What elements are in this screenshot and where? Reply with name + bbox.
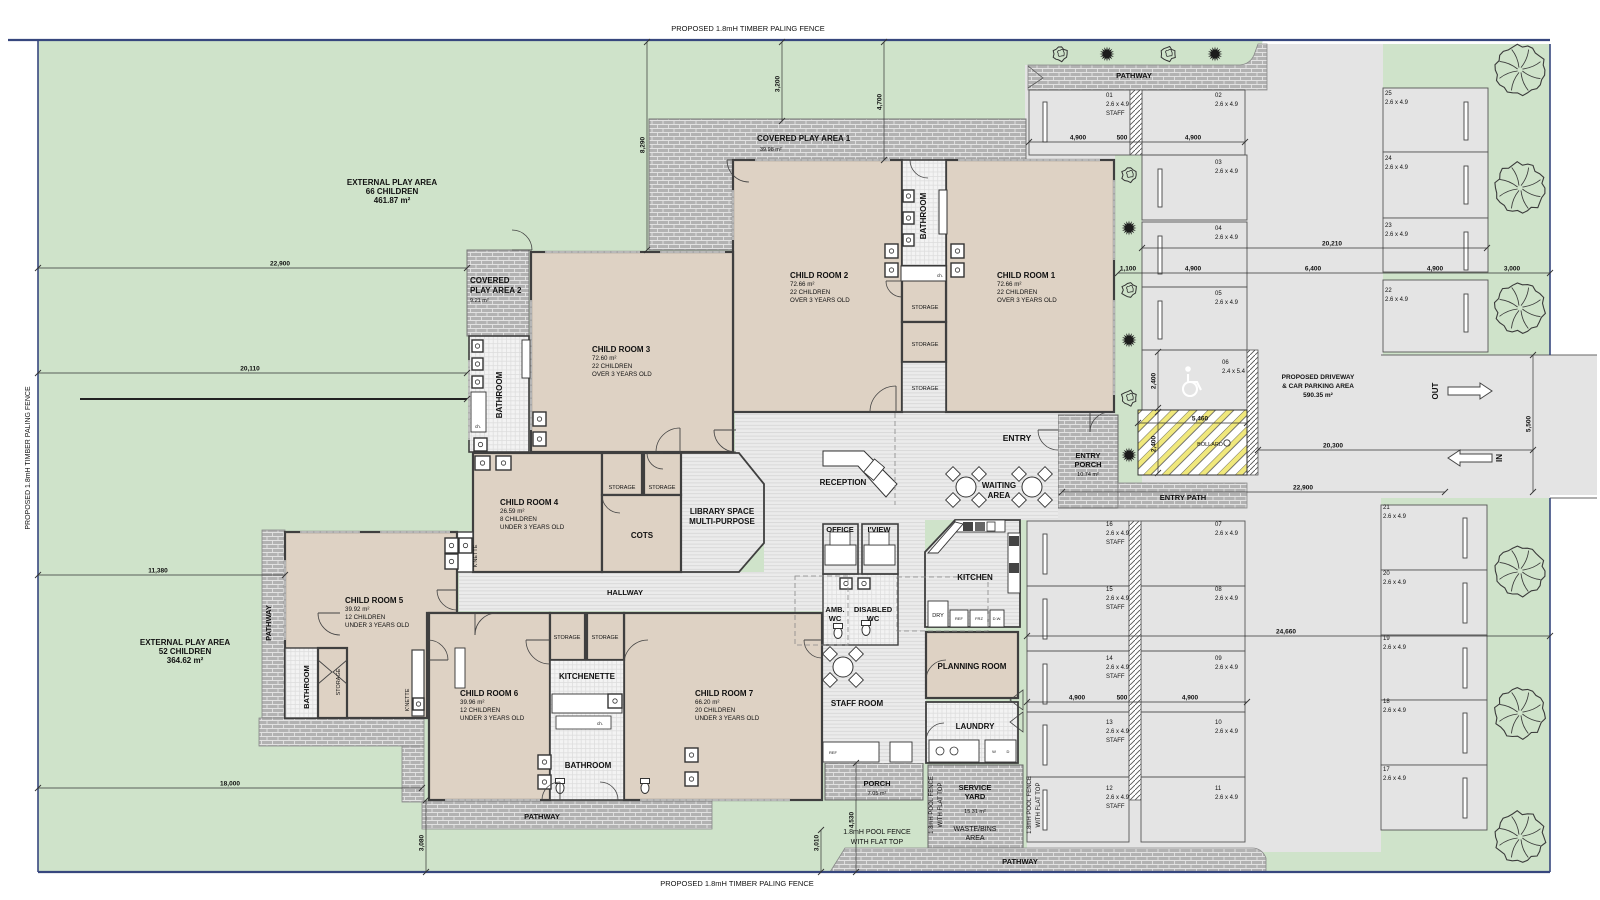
svg-text:OVER 3 YEARS OLD: OVER 3 YEARS OLD [592, 371, 652, 378]
svg-text:20,110: 20,110 [240, 366, 260, 373]
svg-text:I'VIEW: I'VIEW [867, 525, 891, 534]
svg-text:21: 21 [1383, 505, 1390, 511]
svg-text:K'NETTE: K'NETTE [473, 544, 479, 567]
svg-text:STORAGE: STORAGE [592, 635, 619, 641]
svg-text:2.4 x 5.4: 2.4 x 5.4 [1222, 369, 1246, 375]
svg-text:2.6 x 4.9: 2.6 x 4.9 [1215, 596, 1239, 602]
svg-text:WITH FLAT TOP: WITH FLAT TOP [938, 783, 944, 828]
svg-text:STORAGE: STORAGE [912, 305, 939, 311]
svg-text:19: 19 [1383, 636, 1390, 642]
svg-text:8,290: 8,290 [640, 136, 647, 153]
svg-text:STAFF: STAFF [1106, 111, 1125, 117]
svg-text:08: 08 [1215, 587, 1222, 593]
svg-text:364.62 m²: 364.62 m² [167, 656, 204, 665]
svg-text:16: 16 [1106, 522, 1113, 528]
svg-text:3,200: 3,200 [775, 75, 782, 92]
svg-text:1,100: 1,100 [1120, 266, 1137, 273]
svg-text:2.6 x 4.9: 2.6 x 4.9 [1106, 596, 1130, 602]
svg-text:2.6 x 4.9: 2.6 x 4.9 [1106, 729, 1130, 735]
svg-text:4,900: 4,900 [1185, 135, 1202, 142]
svg-text:4,900: 4,900 [1070, 135, 1087, 142]
svg-text:3,010: 3,010 [814, 834, 821, 851]
svg-text:COVERED: COVERED [470, 276, 510, 285]
svg-text:ENTRY: ENTRY [1003, 433, 1032, 443]
svg-text:12: 12 [1106, 786, 1113, 792]
svg-text:CHILD ROOM 2: CHILD ROOM 2 [790, 271, 849, 280]
svg-text:2.6 x 4.9: 2.6 x 4.9 [1385, 165, 1409, 171]
svg-text:ENTRY PATH: ENTRY PATH [1160, 493, 1206, 502]
svg-text:CHILD ROOM 6: CHILD ROOM 6 [460, 689, 519, 698]
svg-text:RECEPTION: RECEPTION [820, 478, 867, 487]
svg-text:4,530: 4,530 [849, 811, 856, 828]
svg-text:2.6 x 4.9: 2.6 x 4.9 [1383, 708, 1407, 714]
svg-text:W: W [992, 749, 996, 754]
svg-text:22 CHILDREN: 22 CHILDREN [592, 363, 632, 370]
svg-text:2.6 x 4.9: 2.6 x 4.9 [1383, 645, 1407, 651]
svg-text:STAFF: STAFF [1106, 540, 1125, 546]
svg-text:DISABLED: DISABLED [854, 605, 893, 614]
svg-text:ch.: ch. [597, 721, 603, 726]
svg-text:STORAGE: STORAGE [649, 485, 676, 491]
svg-text:CHILD ROOM 4: CHILD ROOM 4 [500, 498, 559, 507]
svg-text:OVER 3 YEARS OLD: OVER 3 YEARS OLD [997, 297, 1057, 304]
svg-text:10.74 m²: 10.74 m² [1077, 472, 1099, 478]
svg-text:PORCH: PORCH [863, 779, 890, 788]
svg-text:COVERED PLAY AREA 1: COVERED PLAY AREA 1 [757, 134, 851, 143]
svg-text:BATHROOM: BATHROOM [919, 192, 928, 239]
svg-text:24,660: 24,660 [1276, 629, 1296, 636]
svg-text:1.8mH POOL FENCE: 1.8mH POOL FENCE [1027, 776, 1033, 834]
svg-text:PLANNING ROOM: PLANNING ROOM [938, 662, 1007, 671]
svg-text:OUT: OUT [1431, 382, 1440, 399]
svg-text:20 CHILDREN: 20 CHILDREN [695, 707, 735, 714]
svg-text:72.66 m²: 72.66 m² [997, 281, 1021, 288]
svg-text:590.35 m²: 590.35 m² [1303, 392, 1333, 399]
svg-text:STAFF ROOM: STAFF ROOM [831, 699, 884, 708]
svg-text:17: 17 [1383, 767, 1390, 773]
svg-text:09: 09 [1215, 656, 1222, 662]
svg-text:HALLWAY: HALLWAY [607, 588, 643, 597]
svg-text:ch.: ch. [937, 273, 943, 278]
svg-text:DRY: DRY [932, 613, 944, 619]
svg-text:CHILD ROOM 3: CHILD ROOM 3 [592, 345, 651, 354]
svg-text:PATHWAY: PATHWAY [264, 605, 273, 641]
svg-text:2.6 x 4.9: 2.6 x 4.9 [1383, 580, 1407, 586]
svg-text:D: D [1007, 749, 1010, 754]
svg-text:39.98 m²: 39.98 m² [760, 147, 782, 153]
svg-text:REF: REF [829, 750, 838, 755]
svg-text:8 CHILDREN: 8 CHILDREN [500, 516, 537, 523]
svg-text:25: 25 [1385, 91, 1392, 97]
svg-text:2.6 x 4.9: 2.6 x 4.9 [1215, 795, 1239, 801]
svg-text:20: 20 [1383, 571, 1390, 577]
svg-text:UNDER 3 YEARS OLD: UNDER 3 YEARS OLD [460, 715, 525, 722]
svg-text:PROPOSED DRIVEWAY: PROPOSED DRIVEWAY [1282, 374, 1355, 381]
svg-text:SERVICE: SERVICE [959, 783, 992, 792]
svg-text:D.W.: D.W. [993, 616, 1002, 621]
svg-text:2.6 x 4.9: 2.6 x 4.9 [1106, 795, 1130, 801]
svg-text:WITH FLAT TOP: WITH FLAT TOP [851, 839, 904, 846]
svg-text:461.87 m²: 461.87 m² [374, 196, 411, 205]
svg-text:2.6 x 4.9: 2.6 x 4.9 [1383, 514, 1407, 520]
svg-text:13: 13 [1106, 720, 1113, 726]
svg-text:K'NETTE: K'NETTE [405, 688, 411, 711]
svg-text:24: 24 [1385, 156, 1392, 162]
svg-text:2.6 x 4.9: 2.6 x 4.9 [1215, 531, 1239, 537]
svg-text:PATHWAY: PATHWAY [1002, 857, 1038, 866]
svg-text:STORAGE: STORAGE [336, 668, 342, 695]
svg-text:2.6 x 4.9: 2.6 x 4.9 [1385, 100, 1409, 106]
svg-text:22 CHILDREN: 22 CHILDREN [997, 289, 1037, 296]
svg-text:07: 07 [1215, 522, 1222, 528]
svg-text:UNDER 3 YEARS OLD: UNDER 3 YEARS OLD [695, 715, 760, 722]
svg-text:UNDER 3 YEARS OLD: UNDER 3 YEARS OLD [500, 524, 565, 531]
svg-text:2.6 x 4.9: 2.6 x 4.9 [1215, 102, 1239, 108]
svg-text:STORAGE: STORAGE [912, 342, 939, 348]
svg-text:KITCHEN: KITCHEN [957, 573, 993, 582]
svg-text:MULTI-PURPOSE: MULTI-PURPOSE [689, 517, 755, 526]
svg-text:66 CHILDREN: 66 CHILDREN [366, 187, 419, 196]
svg-text:BATHROOM: BATHROOM [565, 761, 612, 770]
svg-text:LIBRARY SPACE: LIBRARY SPACE [690, 507, 755, 516]
svg-text:20,210: 20,210 [1322, 241, 1342, 248]
svg-text:26.59 m²: 26.59 m² [500, 508, 524, 515]
svg-text:5,460: 5,460 [1192, 416, 1209, 423]
svg-text:05: 05 [1215, 291, 1222, 297]
svg-text:WC: WC [867, 614, 880, 623]
svg-text:BATHROOM: BATHROOM [302, 665, 311, 709]
svg-text:500: 500 [1117, 695, 1128, 702]
svg-text:2.6 x 4.9: 2.6 x 4.9 [1215, 665, 1239, 671]
svg-text:18: 18 [1383, 699, 1390, 705]
svg-text:6,400: 6,400 [1305, 266, 1322, 273]
svg-text:WASTE/BINS: WASTE/BINS [954, 826, 997, 833]
svg-text:1.8mH POOL FENCE: 1.8mH POOL FENCE [929, 776, 935, 834]
svg-text:4,900: 4,900 [1182, 695, 1199, 702]
svg-text:06: 06 [1222, 360, 1229, 366]
svg-text:72.66 m²: 72.66 m² [790, 281, 814, 288]
svg-text:ENTRY: ENTRY [1075, 451, 1100, 460]
svg-text:& CAR PARKING AREA: & CAR PARKING AREA [1282, 383, 1354, 390]
svg-text:5,500: 5,500 [1526, 415, 1533, 432]
svg-text:500: 500 [1117, 135, 1128, 142]
svg-text:WITH FLAT TOP: WITH FLAT TOP [1036, 783, 1042, 828]
svg-text:BATHROOM: BATHROOM [495, 371, 504, 418]
svg-text:22: 22 [1385, 288, 1392, 294]
svg-text:2.6 x 4.9: 2.6 x 4.9 [1215, 235, 1239, 241]
svg-text:22,900: 22,900 [270, 261, 290, 268]
svg-text:18,000: 18,000 [220, 781, 240, 788]
svg-text:2.6 x 4.9: 2.6 x 4.9 [1215, 300, 1239, 306]
svg-text:3,000: 3,000 [1504, 266, 1521, 273]
svg-text:PORCH: PORCH [1074, 460, 1101, 469]
svg-text:02: 02 [1215, 93, 1222, 99]
svg-text:ch.: ch. [475, 424, 481, 429]
svg-text:04: 04 [1215, 226, 1222, 232]
svg-text:STORAGE: STORAGE [554, 635, 581, 641]
svg-text:CHILD ROOM 5: CHILD ROOM 5 [345, 596, 404, 605]
svg-text:4,900: 4,900 [1427, 266, 1444, 273]
svg-text:PATHWAY: PATHWAY [524, 812, 560, 821]
svg-text:COTS: COTS [631, 531, 654, 540]
svg-text:PROPOSED 1.8mH TIMBER PALING F: PROPOSED 1.8mH TIMBER PALING FENCE [671, 24, 825, 33]
svg-text:CHILD ROOM 1: CHILD ROOM 1 [997, 271, 1056, 280]
svg-text:7.05 m²: 7.05 m² [868, 791, 887, 797]
svg-text:23: 23 [1385, 223, 1392, 229]
svg-text:BOLLARD: BOLLARD [1197, 442, 1223, 448]
svg-text:PLAY AREA 2: PLAY AREA 2 [470, 286, 522, 295]
svg-text:52 CHILDREN: 52 CHILDREN [159, 647, 212, 656]
svg-text:FRZ: FRZ [975, 616, 983, 621]
svg-text:2,400: 2,400 [1151, 435, 1158, 452]
svg-text:EXTERNAL PLAY AREA: EXTERNAL PLAY AREA [140, 638, 230, 647]
svg-text:2.6 x 4.9: 2.6 x 4.9 [1385, 297, 1409, 303]
svg-text:01: 01 [1106, 93, 1113, 99]
svg-text:AREA: AREA [965, 835, 984, 842]
svg-text:2.6 x 4.9: 2.6 x 4.9 [1383, 776, 1407, 782]
svg-text:OFFICE: OFFICE [826, 525, 854, 534]
svg-text:3,080: 3,080 [419, 834, 426, 851]
svg-text:PATHWAY: PATHWAY [1116, 71, 1152, 80]
svg-text:STAFF: STAFF [1106, 674, 1125, 680]
svg-text:EXTERNAL PLAY AREA: EXTERNAL PLAY AREA [347, 178, 437, 187]
svg-text:OVER 3 YEARS OLD: OVER 3 YEARS OLD [790, 297, 850, 304]
svg-text:PROPOSED 1.8mH TIMBER PALING F: PROPOSED 1.8mH TIMBER PALING FENCE [660, 879, 814, 888]
svg-text:11: 11 [1215, 786, 1222, 792]
svg-text:12 CHILDREN: 12 CHILDREN [345, 614, 385, 621]
svg-text:11,380: 11,380 [148, 568, 168, 575]
svg-text:REF: REF [955, 616, 964, 621]
svg-text:9.21 m²: 9.21 m² [470, 298, 489, 304]
svg-text:IN: IN [1495, 454, 1504, 462]
svg-text:72.60 m²: 72.60 m² [592, 355, 616, 362]
svg-text:2.6 x 4.9: 2.6 x 4.9 [1106, 665, 1130, 671]
svg-text:WAITING: WAITING [982, 481, 1016, 490]
svg-text:2.6 x 4.9: 2.6 x 4.9 [1215, 729, 1239, 735]
svg-text:2.6 x 4.9: 2.6 x 4.9 [1106, 531, 1130, 537]
svg-text:4,700: 4,700 [877, 93, 884, 110]
svg-text:KITCHENETTE: KITCHENETTE [559, 672, 616, 681]
svg-text:12 CHILDREN: 12 CHILDREN [460, 707, 500, 714]
svg-text:AMB.: AMB. [825, 605, 844, 614]
svg-text:WC: WC [829, 614, 842, 623]
svg-text:STAFF: STAFF [1106, 804, 1125, 810]
svg-text:22 CHILDREN: 22 CHILDREN [790, 289, 830, 296]
svg-text:4,900: 4,900 [1069, 695, 1086, 702]
svg-text:03: 03 [1215, 160, 1222, 166]
svg-text:2.6 x 4.9: 2.6 x 4.9 [1106, 102, 1130, 108]
svg-text:STAFF: STAFF [1106, 738, 1125, 744]
svg-text:39.92 m²: 39.92 m² [345, 606, 369, 613]
svg-text:CHILD ROOM 7: CHILD ROOM 7 [695, 689, 754, 698]
svg-text:LAUNDRY: LAUNDRY [956, 722, 995, 731]
svg-text:14: 14 [1106, 656, 1113, 662]
svg-text:2.6 x 4.9: 2.6 x 4.9 [1215, 169, 1239, 175]
svg-text:2.6 x 4.9: 2.6 x 4.9 [1385, 232, 1409, 238]
svg-text:PROPOSED 1.8mH TIMBER PALING F: PROPOSED 1.8mH TIMBER PALING FENCE [25, 386, 32, 530]
svg-text:39.96 m²: 39.96 m² [460, 699, 484, 706]
svg-text:YARD: YARD [965, 792, 986, 801]
svg-text:1.8mH POOL FENCE: 1.8mH POOL FENCE [843, 829, 911, 836]
svg-text:10: 10 [1215, 720, 1222, 726]
svg-text:4,900: 4,900 [1185, 266, 1202, 273]
svg-text:STAFF: STAFF [1106, 605, 1125, 611]
svg-text:22,900: 22,900 [1293, 485, 1313, 492]
svg-text:AREA: AREA [988, 491, 1011, 500]
svg-text:STORAGE: STORAGE [912, 386, 939, 392]
svg-text:15.31 m²: 15.31 m² [964, 809, 986, 815]
svg-text:2,400: 2,400 [1151, 372, 1158, 389]
svg-text:66.20 m²: 66.20 m² [695, 699, 719, 706]
svg-text:STORAGE: STORAGE [609, 485, 636, 491]
svg-text:20,300: 20,300 [1323, 443, 1343, 450]
svg-text:UNDER 3 YEARS OLD: UNDER 3 YEARS OLD [345, 622, 410, 629]
svg-text:15: 15 [1106, 587, 1113, 593]
